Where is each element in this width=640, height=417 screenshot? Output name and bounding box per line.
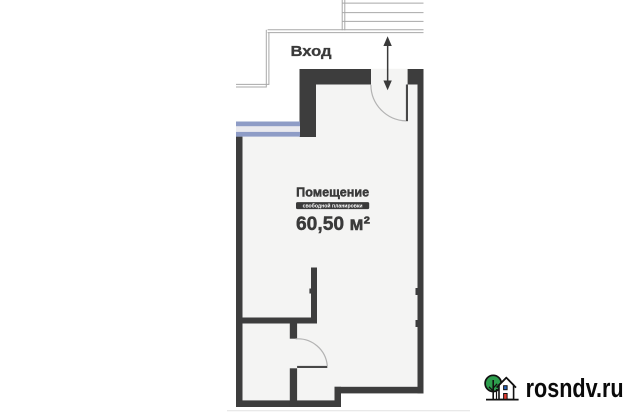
svg-text:60,50 м²: 60,50 м² (296, 214, 370, 235)
svg-text:Вход: Вход (291, 43, 333, 60)
svg-text:rosndv.ru: rosndv.ru (526, 375, 624, 403)
svg-text:Помещение: Помещение (296, 186, 369, 200)
svg-text:свободной планировки: свободной планировки (303, 203, 363, 210)
